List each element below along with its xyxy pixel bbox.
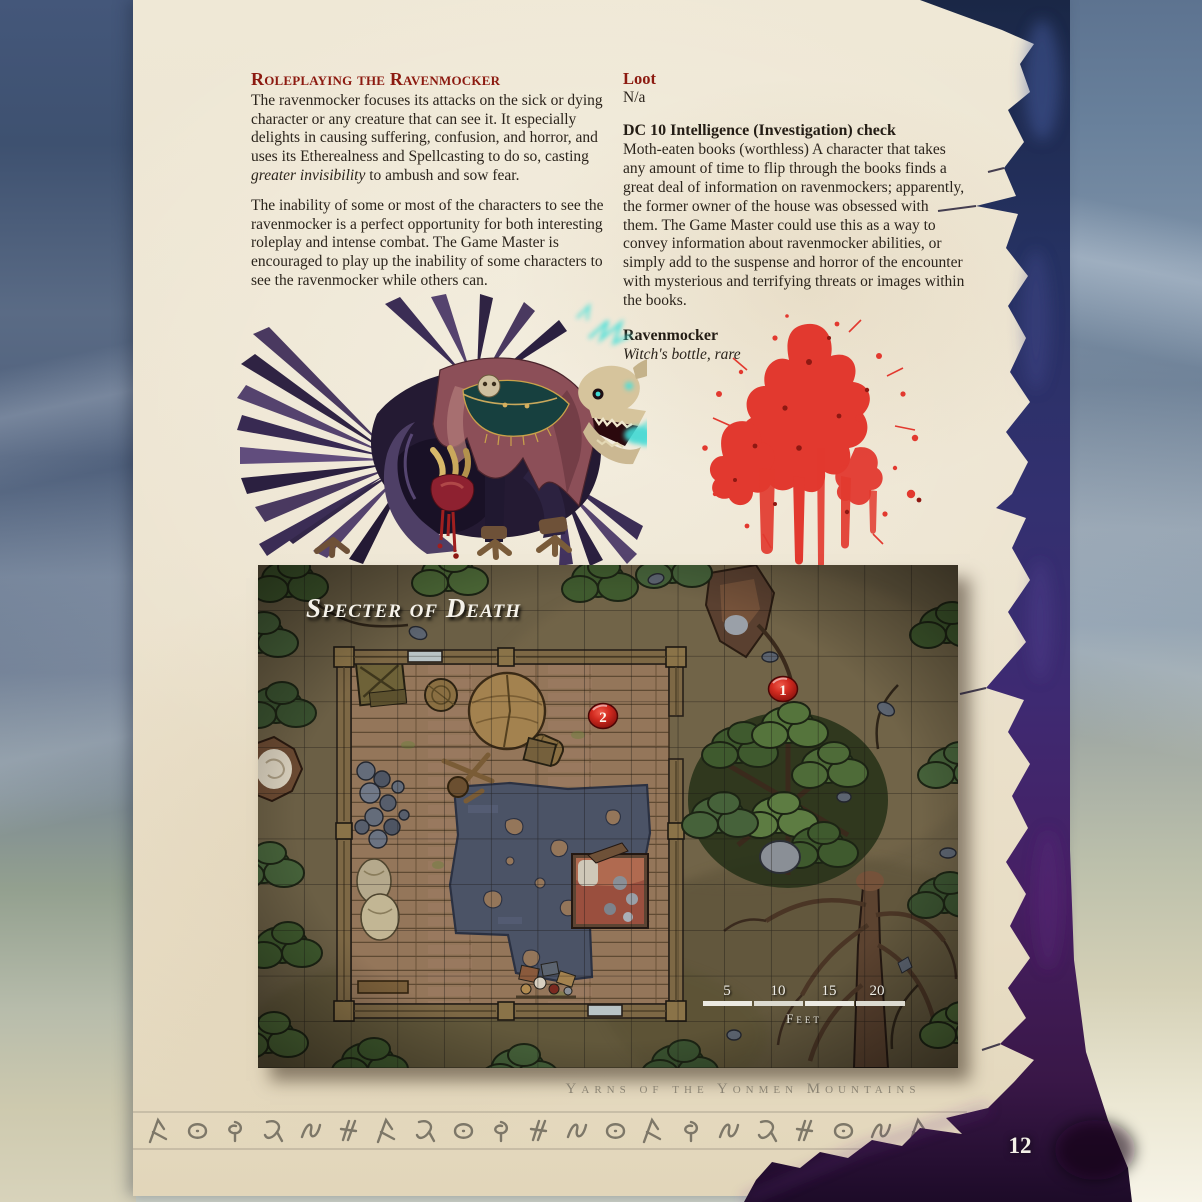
loot-heading: Loot	[623, 70, 965, 89]
para1-lead: The ravenmocker focuses its attacks on t…	[251, 92, 603, 165]
svg-text:Feet: Feet	[786, 1011, 822, 1026]
roleplaying-paragraph-1: The ravenmocker focuses its attacks on t…	[251, 92, 605, 186]
rune-glyphs	[150, 1120, 926, 1142]
background-watercolor-right	[1066, 0, 1202, 1202]
map-marker-1: 1	[769, 677, 798, 702]
svg-text:5: 5	[723, 983, 731, 999]
para1-spell-name: greater invisibility	[251, 167, 365, 184]
svg-text:15: 15	[822, 983, 837, 999]
battle-map: 1 2 Specter of Death 5 10 15 20 Feet	[258, 565, 958, 1068]
svg-text:1: 1	[779, 683, 787, 699]
page-number: 12	[994, 1133, 1046, 1159]
book-page-scan: Roleplaying the Ravenmocker The ravenmoc…	[0, 0, 1202, 1202]
loot-value: N/a	[623, 89, 965, 108]
background-watercolor-left	[0, 0, 136, 1202]
battle-map-art: 1 2 Specter of Death 5 10 15 20 Feet	[258, 565, 958, 1068]
blood-splatter	[689, 298, 941, 568]
check-body: Moth-eaten books (worthless) A character…	[623, 141, 965, 310]
roleplaying-paragraph-2: The inability of some or most of the cha…	[251, 197, 605, 291]
map-title: Specter of Death	[306, 593, 521, 623]
check-heading: DC 10 Intelligence (Investigation) check	[623, 122, 965, 141]
skull-trinket	[478, 375, 500, 397]
map-marker-2: 2	[589, 704, 618, 729]
svg-text:10: 10	[771, 983, 786, 999]
ravenmocker-illustration	[237, 294, 647, 568]
rune-glyph-band	[131, 1109, 969, 1153]
left-column: Roleplaying the Ravenmocker The ravenmoc…	[251, 70, 605, 302]
running-footer: Yarns of the Yonmen Mountains	[433, 1081, 1053, 1098]
svg-text:2: 2	[599, 710, 607, 726]
para1-tail: to ambush and sow fear.	[365, 167, 519, 184]
parchment-page: Roleplaying the Ravenmocker The ravenmoc…	[133, 0, 1068, 1196]
section-heading-roleplaying: Roleplaying the Ravenmocker	[251, 70, 605, 89]
svg-text:20: 20	[870, 983, 885, 999]
